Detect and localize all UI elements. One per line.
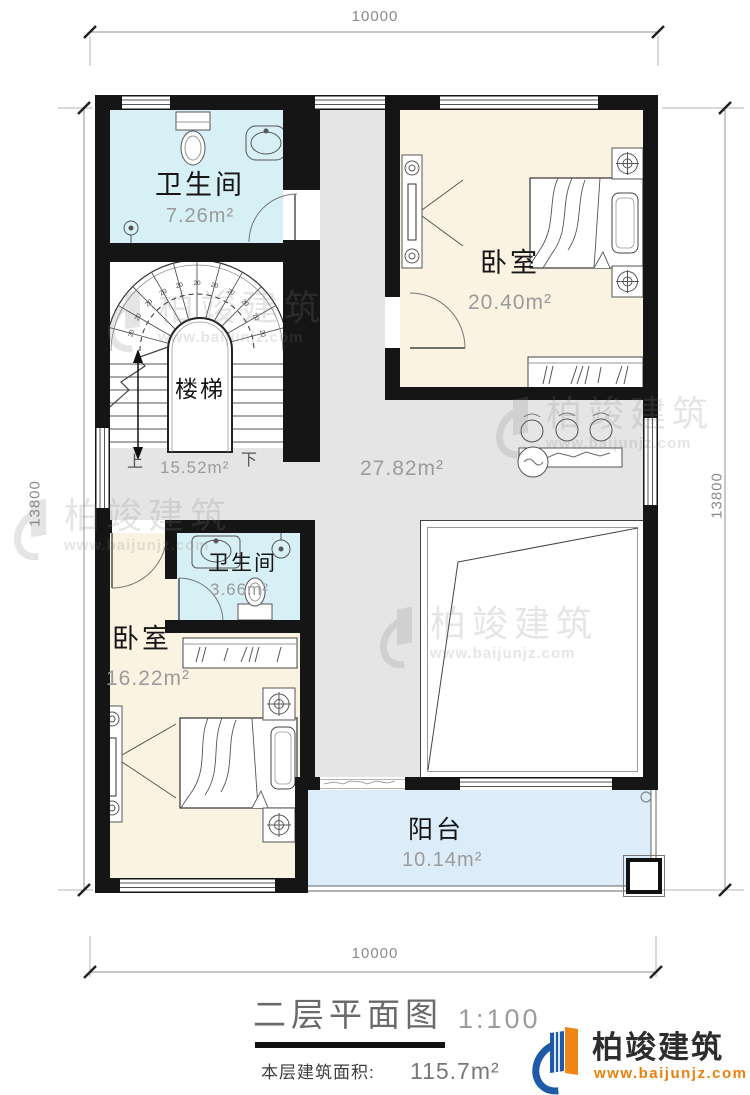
stairs-tread-labels: 20 20 20 20 20 20 20 20 20 20 20 xyxy=(127,280,266,338)
wall xyxy=(643,110,658,418)
room-fill-bath-mid xyxy=(177,533,300,620)
wall xyxy=(283,110,320,190)
stairs-geometry: 20 20 20 20 20 20 20 20 20 20 20 xyxy=(103,260,288,460)
sheet-scale: 1:100 xyxy=(458,1006,541,1033)
svg-text:20: 20 xyxy=(240,298,250,308)
stairs-down-label: 下 xyxy=(241,453,257,469)
svg-text:20: 20 xyxy=(193,280,201,287)
wall xyxy=(405,777,460,790)
dimension-right: 13800 xyxy=(710,451,725,541)
floor-area-label: 本层建筑面积: xyxy=(261,1064,375,1081)
room-label-balcony: 阳台 xyxy=(408,818,464,843)
room-area-bath-mid: 3.66m² xyxy=(210,581,269,598)
window xyxy=(95,428,110,508)
room-area-bath-top: 7.26m² xyxy=(152,206,248,226)
hall-fill-strip xyxy=(315,520,420,777)
wall xyxy=(95,520,112,533)
balcony-column xyxy=(626,858,662,894)
svg-text:20: 20 xyxy=(258,329,267,338)
room-label-bedroom-bottom: 卧室 xyxy=(112,626,172,653)
svg-text:20: 20 xyxy=(158,287,168,297)
wall xyxy=(95,95,122,110)
room-label-stairs: 楼梯 xyxy=(168,378,232,401)
wall xyxy=(170,95,315,110)
void-inner-line xyxy=(427,527,638,772)
room-label-bath-mid: 卫生间 xyxy=(208,553,277,574)
svg-text:20: 20 xyxy=(210,282,219,291)
wall xyxy=(300,520,315,790)
wall xyxy=(95,878,120,893)
wall xyxy=(612,777,655,790)
wall xyxy=(283,240,320,462)
threshold-step xyxy=(320,780,405,789)
brand-logo-icon xyxy=(534,1026,590,1088)
wall xyxy=(165,520,315,533)
dimension-bottom: 10000 xyxy=(330,946,420,961)
window xyxy=(122,95,170,110)
floor-area-value: 115.7m² xyxy=(410,1060,500,1083)
void-open-area xyxy=(420,520,645,779)
wall xyxy=(385,110,400,297)
window-sliding-door xyxy=(460,777,612,790)
wall xyxy=(643,505,658,790)
room-area-balcony: 10.14m² xyxy=(402,850,482,870)
logo-building-orange xyxy=(565,1027,578,1075)
svg-text:20: 20 xyxy=(251,312,261,322)
room-area-bedroom-top: 20.40m² xyxy=(450,292,570,313)
hall-fill-lower xyxy=(385,400,643,448)
svg-text:20: 20 xyxy=(134,312,144,322)
room-fill-balcony xyxy=(308,790,651,886)
wall xyxy=(165,620,315,633)
window xyxy=(440,95,598,110)
wall xyxy=(95,508,110,893)
logo-building-blue xyxy=(550,1031,564,1073)
wall xyxy=(385,95,440,110)
floor-plan-sheet: 20 20 20 20 20 20 20 20 20 20 20 xyxy=(0,0,750,1095)
wall xyxy=(598,95,658,110)
room-area-hall: 27.82m² xyxy=(360,458,444,479)
dimension-top: 10000 xyxy=(330,9,420,24)
svg-text:20: 20 xyxy=(226,288,236,298)
hall-fill-corridor xyxy=(320,110,385,462)
title-underline xyxy=(255,1042,445,1048)
brand-watermark-icon xyxy=(110,290,150,348)
room-area-stairs: 15.52m² xyxy=(160,459,229,476)
brand-name: 柏竣建筑 xyxy=(592,1032,724,1063)
room-label-bedroom-top: 卧室 xyxy=(450,250,570,277)
window xyxy=(643,418,658,505)
window xyxy=(120,878,275,893)
svg-text:20: 20 xyxy=(175,281,184,290)
brand-url: www.baijunjz.com xyxy=(594,1066,747,1081)
window xyxy=(315,95,385,110)
sheet-title: 二层平面图 xyxy=(253,998,443,1031)
svg-text:20: 20 xyxy=(127,329,136,338)
wall xyxy=(295,790,308,885)
room-area-bedroom-bottom: 16.22m² xyxy=(106,668,190,689)
stairs-up-label: 上 xyxy=(127,455,143,471)
wall xyxy=(295,777,320,790)
svg-text:20: 20 xyxy=(144,298,154,308)
wall xyxy=(95,110,110,428)
wall xyxy=(385,387,643,400)
wall xyxy=(165,533,177,579)
room-label-bath-top: 卫生间 xyxy=(150,172,250,199)
dimension-left: 13800 xyxy=(28,459,43,549)
